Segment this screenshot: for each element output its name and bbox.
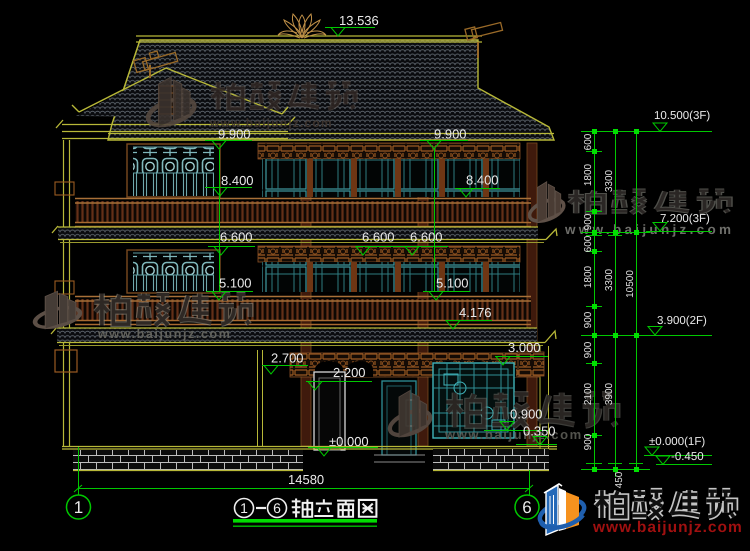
svg-text:600: 600 bbox=[583, 133, 594, 150]
svg-text:450: 450 bbox=[614, 471, 625, 488]
svg-text:900: 900 bbox=[583, 311, 594, 328]
svg-text:1: 1 bbox=[74, 498, 83, 517]
svg-text:4.176: 4.176 bbox=[459, 305, 492, 320]
svg-text:1: 1 bbox=[240, 500, 248, 516]
svg-text:900: 900 bbox=[583, 433, 594, 450]
svg-text:6: 6 bbox=[273, 500, 281, 516]
svg-text:2.200: 2.200 bbox=[333, 365, 366, 380]
svg-text:13.536: 13.536 bbox=[339, 13, 379, 28]
svg-text:±0.000: ±0.000 bbox=[329, 434, 369, 449]
svg-text:-0.450: -0.450 bbox=[671, 451, 704, 463]
svg-text:10500: 10500 bbox=[625, 270, 636, 298]
svg-text:0.350: 0.350 bbox=[523, 424, 556, 439]
svg-text:10.500(3F): 10.500(3F) bbox=[654, 110, 710, 122]
svg-text:3300: 3300 bbox=[604, 268, 615, 291]
svg-text:1800: 1800 bbox=[583, 163, 594, 186]
svg-text:1800: 1800 bbox=[583, 265, 594, 288]
svg-text:3300: 3300 bbox=[604, 169, 615, 192]
svg-text:www.baijunjz.com: www.baijunjz.com bbox=[97, 327, 231, 341]
svg-text:2100: 2100 bbox=[583, 382, 594, 405]
svg-text:9.900: 9.900 bbox=[218, 127, 251, 142]
svg-text:www.baijunjz.com: www.baijunjz.com bbox=[444, 427, 583, 442]
svg-text:3900: 3900 bbox=[604, 382, 615, 405]
svg-text:6: 6 bbox=[522, 498, 531, 517]
svg-text:6.600: 6.600 bbox=[410, 230, 443, 245]
svg-text:7.200(3F): 7.200(3F) bbox=[660, 213, 710, 225]
svg-text:600: 600 bbox=[583, 235, 594, 252]
svg-text:8.400: 8.400 bbox=[221, 173, 254, 188]
svg-text:9.900: 9.900 bbox=[434, 127, 467, 142]
svg-text:8.400: 8.400 bbox=[466, 173, 499, 188]
svg-text:14580: 14580 bbox=[288, 472, 324, 487]
svg-text:www.baijunjz.com: www.baijunjz.com bbox=[592, 519, 743, 536]
svg-text:3.900(2F): 3.900(2F) bbox=[657, 315, 707, 327]
svg-text:3.000: 3.000 bbox=[508, 340, 541, 355]
svg-text:6.600: 6.600 bbox=[220, 230, 253, 245]
svg-text:2.700: 2.700 bbox=[271, 351, 304, 366]
svg-text:900: 900 bbox=[583, 341, 594, 358]
svg-text:±0.000(1F): ±0.000(1F) bbox=[649, 436, 705, 448]
svg-text:0.900: 0.900 bbox=[510, 407, 543, 422]
svg-text:5.100: 5.100 bbox=[436, 276, 469, 291]
svg-text:6.600: 6.600 bbox=[362, 230, 395, 245]
svg-text:900: 900 bbox=[583, 213, 594, 230]
svg-text:5.100: 5.100 bbox=[219, 276, 252, 291]
